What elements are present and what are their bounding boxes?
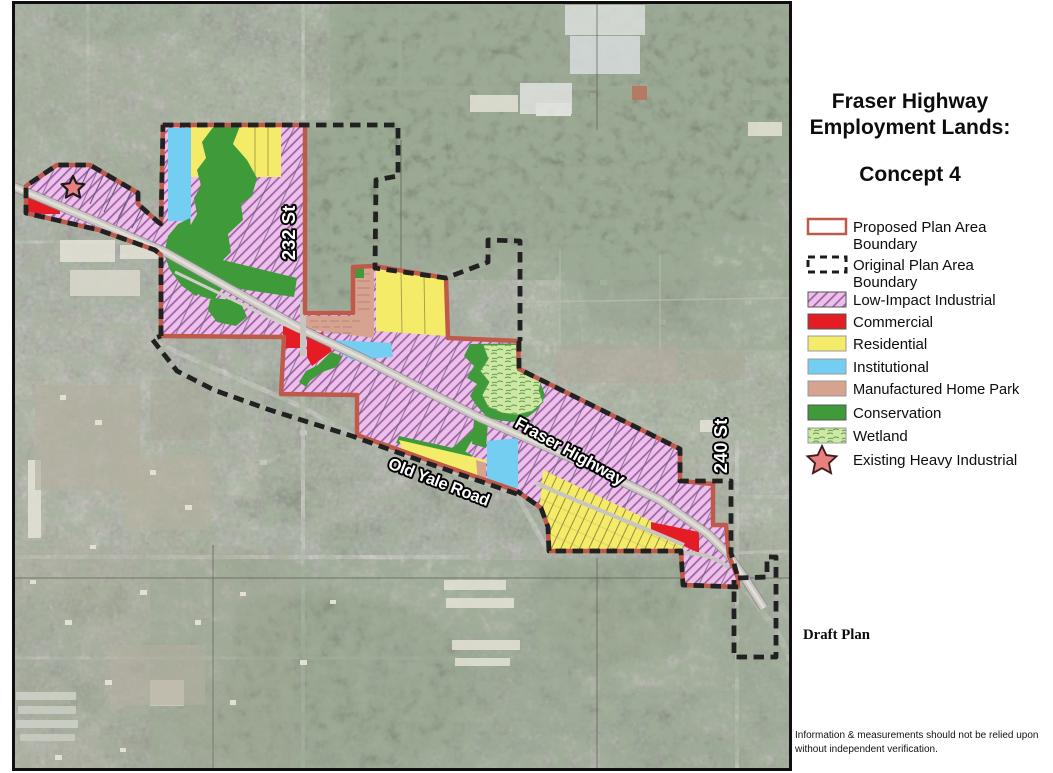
- svg-text:Boundary: Boundary: [853, 274, 918, 291]
- svg-text:Draft Plan: Draft Plan: [803, 627, 870, 643]
- svg-text:Original Plan Area: Original Plan Area: [853, 257, 975, 274]
- svg-text:232 St: 232 St: [278, 206, 299, 261]
- svg-text:Proposed Plan Area: Proposed Plan Area: [853, 219, 987, 236]
- svg-text:Information & measurements sho: Information & measurements should not be…: [795, 730, 1038, 741]
- svg-text:Conservation: Conservation: [853, 405, 941, 422]
- svg-text:Institutional: Institutional: [853, 359, 929, 376]
- svg-text:Fraser Highway: Fraser Highway: [832, 90, 989, 113]
- svg-text:Low-Impact Industrial: Low-Impact Industrial: [853, 292, 996, 309]
- svg-text:Wetland: Wetland: [853, 428, 908, 445]
- svg-text:without independent verificati: without independent verification.: [794, 744, 938, 755]
- svg-text:Existing Heavy Industrial: Existing Heavy Industrial: [853, 452, 1017, 469]
- svg-text:Commercial: Commercial: [853, 314, 933, 331]
- svg-text:240 St: 240 St: [710, 419, 731, 474]
- svg-text:Concept 4: Concept 4: [859, 163, 961, 186]
- svg-text:Residential: Residential: [853, 336, 927, 353]
- svg-text:Manufactured Home Park: Manufactured Home Park: [853, 382, 1020, 398]
- svg-text:Employment Lands:: Employment Lands:: [810, 116, 1011, 139]
- svg-text:Boundary: Boundary: [853, 236, 918, 253]
